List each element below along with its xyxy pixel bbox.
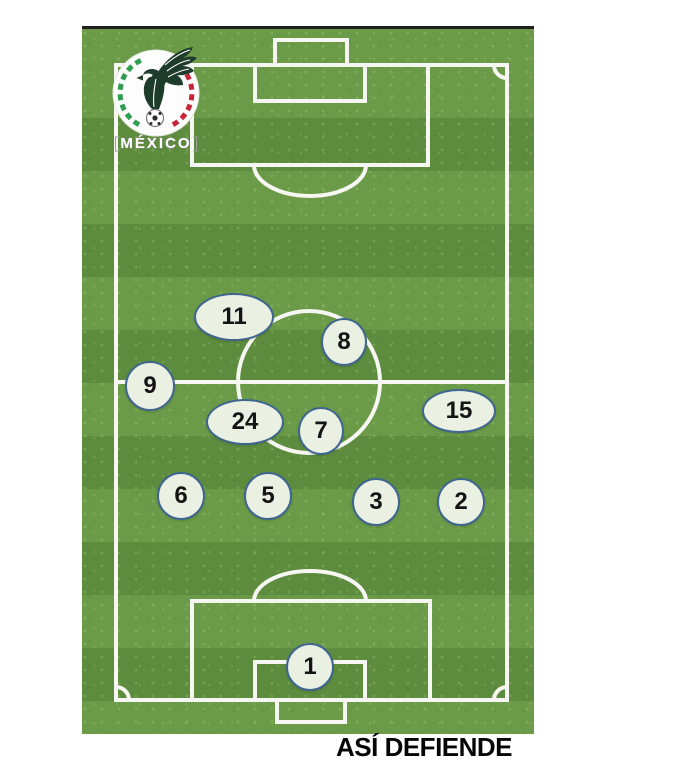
player-marker-24: 24 xyxy=(206,399,284,445)
player-marker-11: 11 xyxy=(194,293,274,341)
player-marker-6: 6 xyxy=(157,472,205,520)
player-marker-9: 9 xyxy=(125,361,175,411)
caption-text: ASÍ DEFIENDE xyxy=(336,732,512,763)
player-number: 15 xyxy=(446,399,473,423)
soccer-pitch: MÉXICO 11892471565321 xyxy=(82,26,534,734)
player-marker-8: 8 xyxy=(321,318,367,366)
player-number: 6 xyxy=(174,484,187,508)
player-number: 8 xyxy=(337,330,350,354)
player-number: 24 xyxy=(232,410,259,434)
player-marker-3: 3 xyxy=(352,478,400,526)
player-marker-2: 2 xyxy=(437,478,485,526)
players-layer: 11892471565321 xyxy=(82,29,534,734)
player-number: 11 xyxy=(221,305,246,329)
player-marker-15: 15 xyxy=(422,389,496,433)
player-number: 7 xyxy=(314,419,327,443)
player-number: 9 xyxy=(143,374,156,398)
player-marker-7: 7 xyxy=(298,407,344,455)
player-marker-1: 1 xyxy=(286,643,334,691)
player-marker-5: 5 xyxy=(244,472,292,520)
player-number: 1 xyxy=(303,655,316,679)
player-number: 5 xyxy=(261,484,274,508)
player-number: 2 xyxy=(454,490,467,514)
player-number: 3 xyxy=(369,490,382,514)
